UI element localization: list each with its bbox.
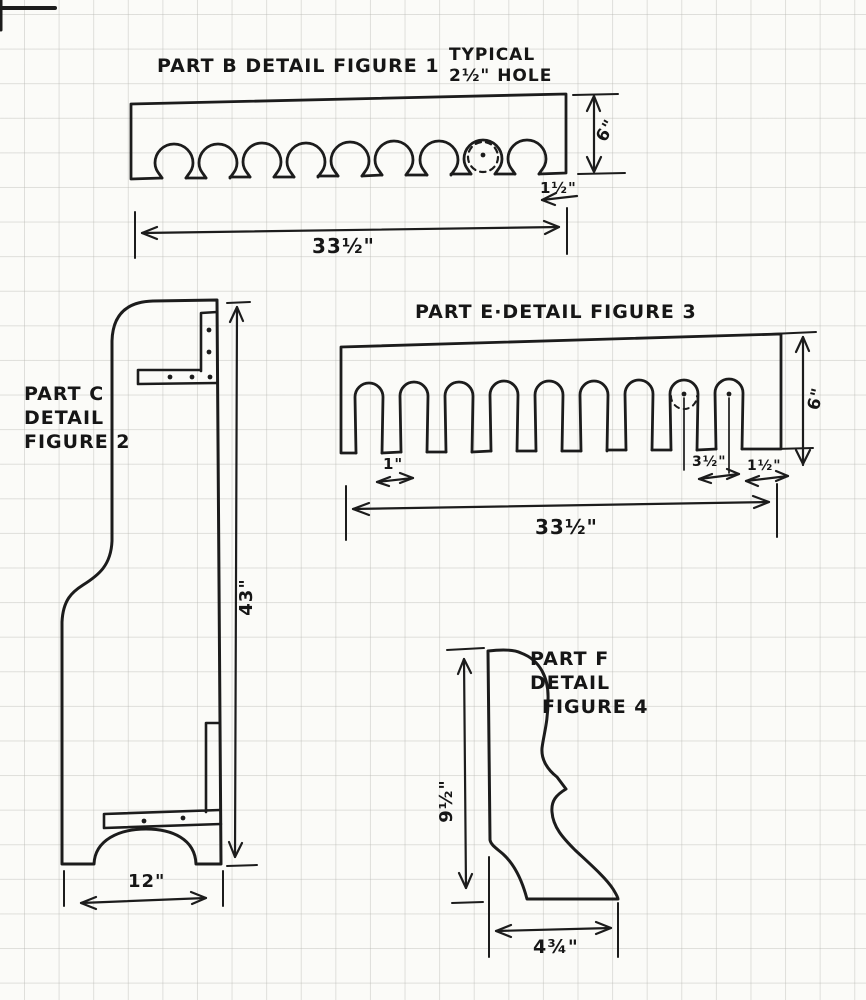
figure4-label-line2: DETAIL — [530, 672, 610, 694]
figure3-edge-offset-dim: 1½" — [747, 458, 782, 476]
figure3-part-e-drawing — [341, 332, 816, 540]
scan-edge-artifact — [0, 0, 55, 30]
figure1-arrowheads — [142, 96, 601, 239]
figure1-edge-offset-dim: 1½" — [540, 179, 577, 198]
graph-paper-sheet: PART B DETAIL FIGURE 1 TYPICAL2½" HOLE 6… — [0, 0, 866, 1000]
figure1-title: PART B DETAIL FIGURE 1 — [157, 55, 440, 79]
figure3-slot-spacing-dim: 3½" — [692, 454, 727, 472]
plan-line-art — [0, 0, 866, 1000]
figure2-height-dim: 43" — [236, 578, 259, 615]
figure4-height-dim: 9½" — [436, 779, 459, 823]
figure2-label-line1: PART C — [24, 383, 104, 405]
figure1-hole-note-line1: TYPICAL — [449, 45, 535, 65]
figure3-length-dim: 33½" — [535, 515, 598, 540]
figure1-hole-center-dot — [481, 153, 486, 158]
figure1-part-b-drawing — [131, 94, 625, 258]
figure1-hole-note-line2: 2½" HOLE — [449, 66, 552, 86]
figure4-label: PART FDETAILFIGURE 4 — [530, 648, 649, 719]
figure4-label-line3: FIGURE 4 — [530, 696, 649, 718]
figure4-label-line1: PART F — [530, 648, 609, 670]
figure1-scallops — [155, 140, 546, 178]
figure3-title: PART E·DETAIL FIGURE 3 — [415, 301, 697, 325]
figure2-label-line3: FIGURE 2 — [24, 431, 131, 453]
figure1-length-dim: 33½" — [312, 234, 375, 259]
figure2-screw-dots — [142, 328, 213, 824]
figure2-width-dim: 12" — [128, 871, 165, 894]
figure3-hole-center-dots — [682, 392, 732, 397]
figure3-dimension-lines — [353, 337, 803, 509]
figure3-slot-width-dim: 1" — [383, 455, 403, 474]
figure1-hole-note: TYPICAL2½" HOLE — [449, 45, 552, 88]
figure2-label-line2: DETAIL — [24, 407, 104, 429]
figure2-label: PART CDETAILFIGURE 2 — [24, 383, 131, 454]
figure4-width-dim: 4¾" — [533, 936, 579, 960]
